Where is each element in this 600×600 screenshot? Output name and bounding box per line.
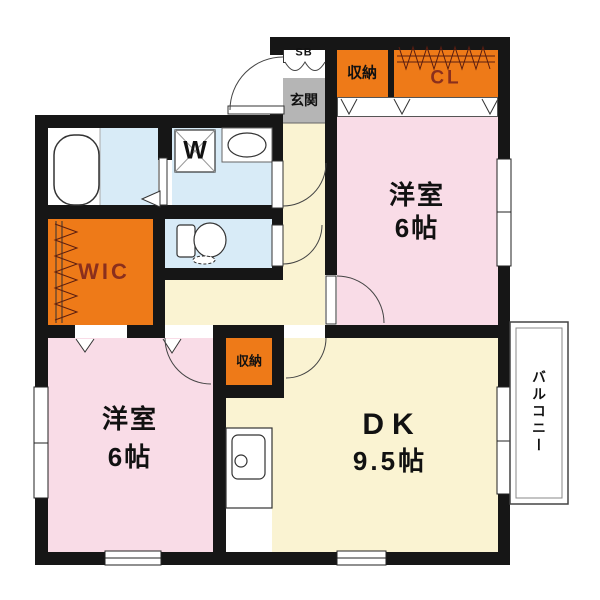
cl-label: CL	[430, 69, 461, 88]
closet-folding-door-strip	[337, 97, 498, 117]
wall-wic-east	[153, 219, 165, 338]
wall-toilet-bottom	[153, 268, 283, 280]
wall-bedroom-sw-east	[213, 338, 226, 552]
wall-mid-1	[48, 325, 75, 338]
top-storage-label: 収納	[347, 66, 377, 81]
hall-corridor	[283, 123, 325, 325]
wall-entrance-stub	[270, 37, 283, 55]
front-door	[228, 57, 284, 114]
wall-bedroom-ne-bottom	[325, 325, 498, 338]
wall-topleft-block	[35, 115, 283, 128]
hall-storage-label: 収納	[236, 355, 262, 368]
shoebox-scallop	[285, 62, 325, 71]
wall-left	[35, 115, 48, 565]
bedroom-ne-size: 6帖	[395, 215, 439, 241]
hall-band	[165, 280, 283, 325]
wall-washroom-east-2	[272, 208, 283, 225]
bedroom-ne-name: 洋室	[389, 182, 445, 208]
wic-label: WIC	[78, 261, 130, 283]
wall-storage-cl-divider	[388, 50, 394, 97]
wall-right	[498, 37, 510, 565]
kitchen-counter-area	[226, 428, 272, 552]
floorplan: SB 玄関 収納 CL 洋室 6帖 W WIC 収納 洋室 6帖 DK 9.5帖…	[0, 0, 600, 600]
wall-corridor-east	[325, 37, 337, 275]
dk-size: 9.5帖	[353, 448, 427, 474]
bedroom-sw-name: 洋室	[102, 406, 158, 432]
toilet-room	[165, 219, 272, 268]
washer-label: W	[183, 139, 207, 164]
wall-hall-storage-bottom	[213, 385, 284, 398]
wall-washroom-east-1	[272, 128, 283, 161]
entrance-label: 玄関	[290, 93, 318, 107]
shoebox-label: SB	[295, 48, 312, 59]
wall-mid-2	[127, 325, 163, 338]
bathroom-tub-platform	[48, 128, 100, 205]
balcony-label: バルコニー	[532, 370, 546, 455]
wall-entrance-lower	[270, 108, 283, 128]
dk-name: DK	[362, 410, 421, 440]
wall-bottom	[35, 552, 510, 565]
wall-bath-washroom	[158, 128, 172, 160]
bedroom-sw-size: 6帖	[108, 444, 152, 470]
wall-wet-band	[48, 205, 283, 219]
